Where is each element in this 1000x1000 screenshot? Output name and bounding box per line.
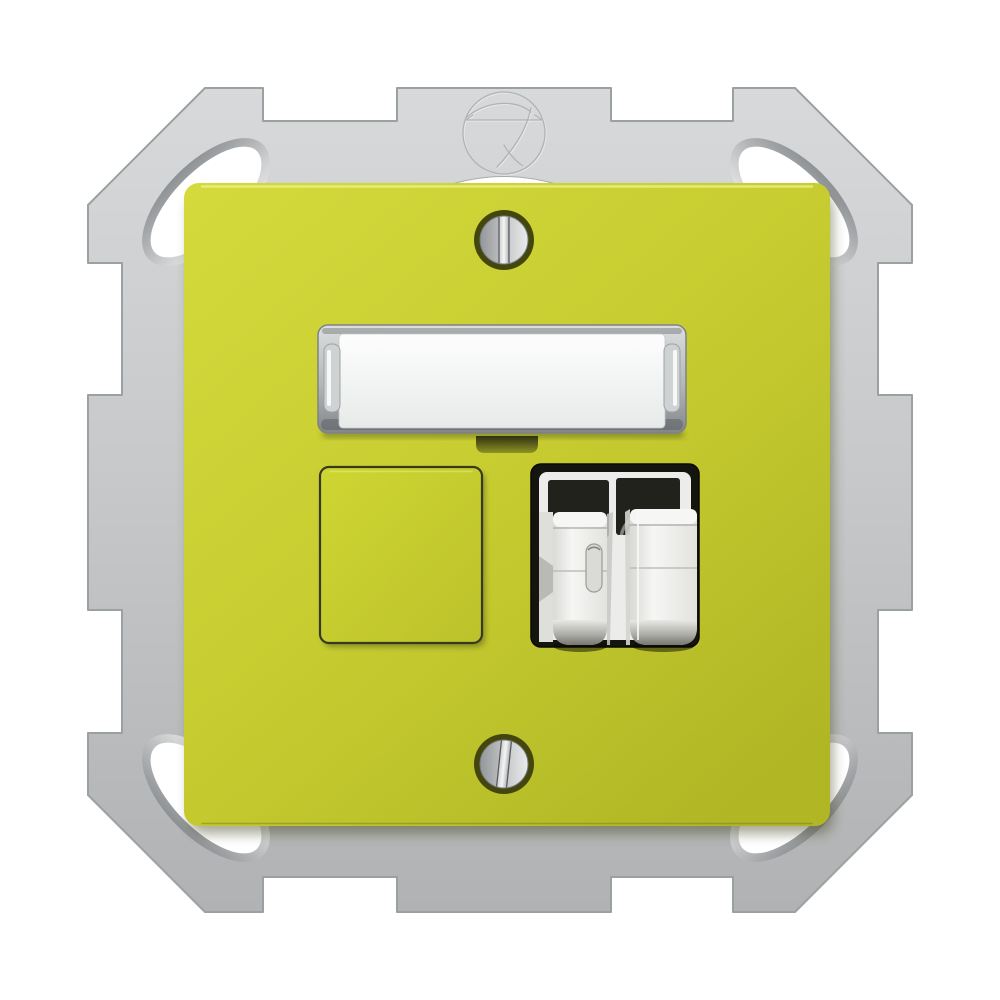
label-frame-top-shade [322, 328, 682, 334]
connector-module [531, 464, 699, 652]
label-window [318, 325, 686, 453]
bottom-screw [474, 734, 534, 794]
top-screw [474, 210, 534, 270]
blank-module [320, 467, 485, 647]
cover-plate [184, 183, 830, 826]
dust-flap-left [553, 512, 607, 645]
flap-lip [553, 512, 607, 527]
product-photo-stage [0, 0, 1000, 1000]
outlet-product-image [0, 0, 1000, 1000]
flap-curl [553, 620, 607, 645]
label-paper [339, 334, 665, 428]
cover-plate-face [184, 183, 830, 826]
label-clip-left [324, 344, 340, 412]
label-release-notch [476, 436, 538, 453]
flap-lip [630, 509, 697, 524]
dust-flap-right [630, 509, 697, 645]
blank-module-cover [320, 467, 482, 643]
flap-slot [586, 544, 602, 592]
label-clip-right [664, 344, 680, 412]
flap-curl [630, 620, 697, 645]
screw-slot [499, 215, 509, 265]
